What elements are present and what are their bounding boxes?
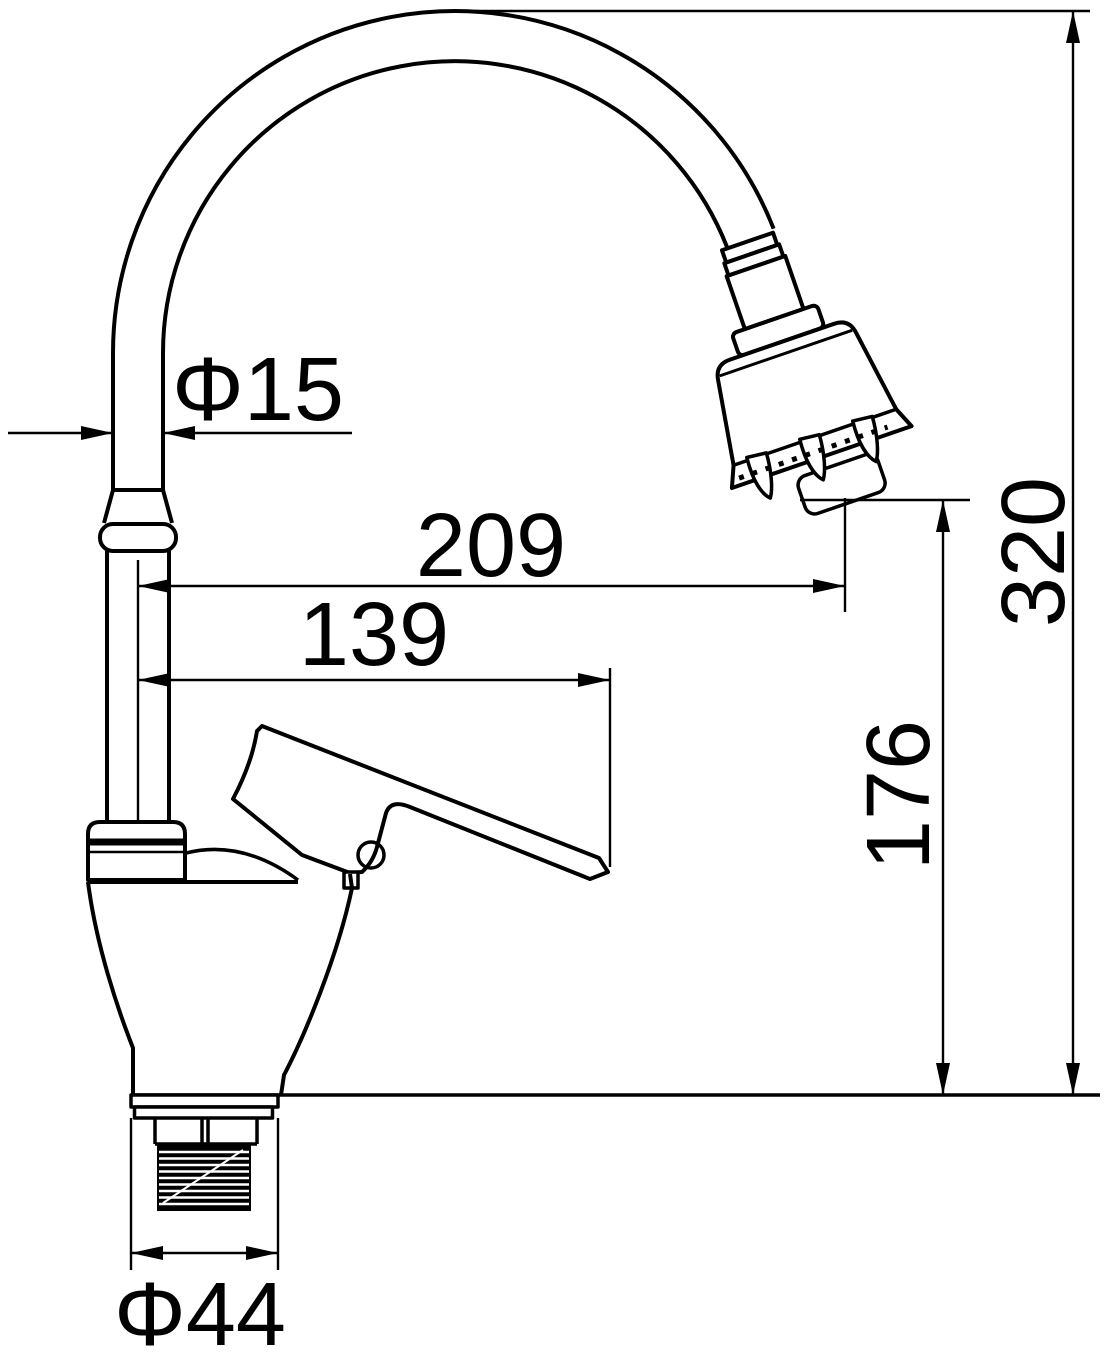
- body-dome-curve: [186, 849, 298, 880]
- riser-pipe-flare: [104, 490, 172, 523]
- dim-label-overall-height: 320: [984, 477, 1084, 627]
- base-flange-upper: [131, 1095, 278, 1107]
- dim-label-outlet-height: 176: [849, 720, 949, 870]
- spray-head: [658, 211, 929, 538]
- threaded-tailpiece: [157, 1145, 251, 1211]
- faucet-outline: [88, 11, 1100, 1211]
- handle-lever: [233, 726, 608, 879]
- dim-label-handle-reach: 139: [299, 585, 449, 685]
- dim-label-spout-reach: 209: [416, 496, 566, 596]
- dim-label-spout-diameter: Φ15: [172, 340, 344, 440]
- technical-drawing-page: Φ15 209 139 176 320 Φ44: [0, 0, 1109, 1358]
- body-left-edge: [88, 882, 133, 1095]
- skirt-edge: [350, 874, 352, 888]
- dim-label-base-diameter: Φ44: [114, 1265, 286, 1358]
- dimension-arrowheads: [81, 11, 1080, 1260]
- riser-bead-ring: [100, 524, 176, 551]
- base-shoulder: [155, 1118, 257, 1144]
- faucet-dimension-drawing: Φ15 209 139 176 320 Φ44: [0, 0, 1109, 1358]
- base-flange-lower: [135, 1107, 273, 1118]
- body-right-edge: [281, 888, 352, 1095]
